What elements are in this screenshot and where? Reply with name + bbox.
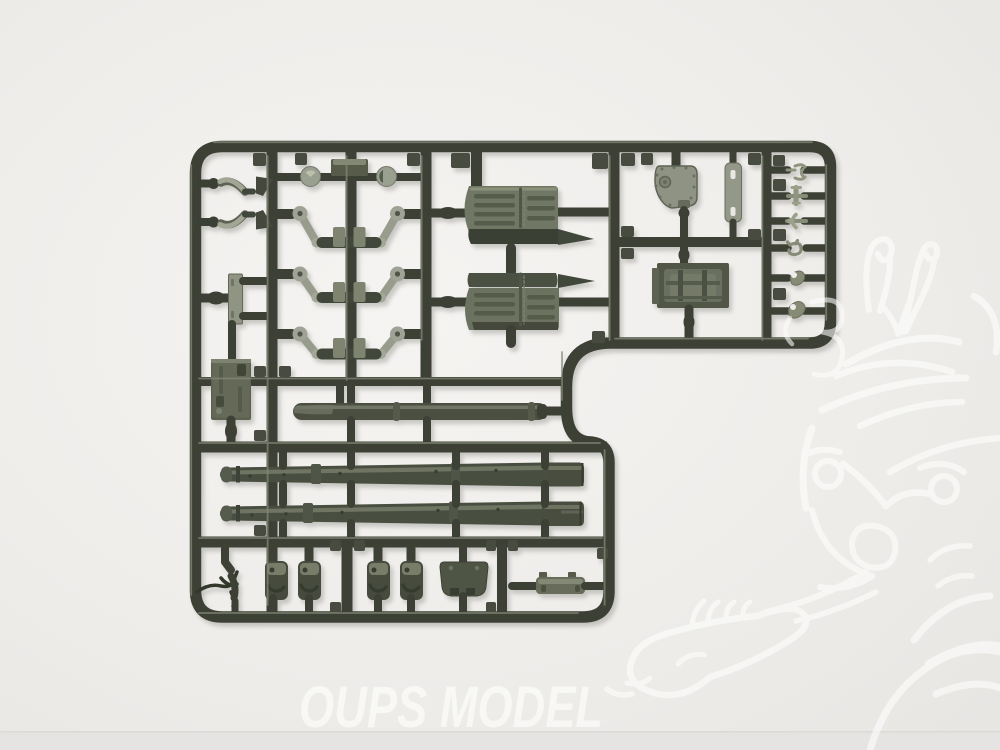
- svg-text:OUPS MODEL: OUPS MODEL: [299, 675, 603, 740]
